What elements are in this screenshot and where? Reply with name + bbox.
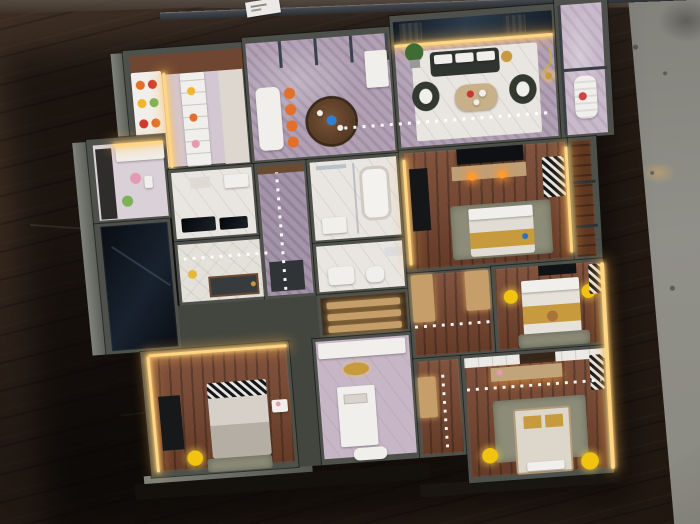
room-dining: [242, 27, 399, 164]
dark-cabinet: [95, 148, 118, 219]
white-dish: [479, 89, 487, 97]
green-flower: [122, 195, 134, 207]
gold-dish: [343, 362, 370, 377]
lit-wardrobe: [418, 376, 439, 418]
room-wardrobe-closet: [317, 289, 412, 339]
bath-fixture: [224, 173, 249, 188]
room-utility: [86, 134, 172, 224]
striped-closet: [542, 156, 566, 198]
sink: [322, 216, 347, 234]
room-bedroom-two: [491, 258, 607, 353]
food-item: [139, 119, 149, 129]
food-item: [149, 98, 159, 108]
food-item: [191, 140, 200, 149]
room-second-kitchen: [312, 332, 420, 465]
cabinet-row: [318, 337, 406, 359]
pink-flower: [130, 172, 142, 184]
sofa: [429, 47, 500, 77]
black-counter: [219, 216, 248, 230]
curtain: [399, 22, 423, 42]
sofa-cushion: [476, 51, 495, 62]
led-strip: [146, 356, 160, 472]
bathtub: [358, 165, 392, 221]
apartment-model: [30, 0, 636, 524]
lit-wardrobe: [410, 274, 435, 323]
striped-pillows: [206, 379, 266, 399]
tag-mark: [251, 3, 267, 7]
mirror: [316, 164, 346, 170]
food-item: [151, 118, 161, 128]
led-dot-run: [441, 370, 449, 448]
bed: [513, 405, 574, 475]
bath-shelf: [384, 246, 403, 256]
warm-downlight: [468, 172, 477, 181]
room-balcony: [554, 0, 614, 139]
kitchen-island: [337, 385, 379, 448]
bar-stool: [283, 87, 295, 99]
closet-shelf: [328, 321, 402, 333]
side-balcony: [568, 136, 603, 260]
gold-pillow: [523, 415, 541, 429]
island-sink: [343, 393, 367, 404]
yellow-stool: [187, 450, 204, 467]
striped-shutters: [589, 354, 605, 390]
warm-downlight: [498, 170, 507, 179]
red-dish: [467, 90, 475, 98]
sofa-cushion: [455, 52, 474, 63]
lit-wardrobe: [464, 270, 490, 311]
sofa-cushion: [434, 54, 453, 65]
bar-stool: [287, 136, 299, 148]
white-vase: [144, 176, 153, 189]
sideboard-cabinet: [364, 50, 389, 88]
bed: [206, 379, 271, 459]
lamp-base: [545, 72, 553, 80]
bed-bench: [527, 460, 565, 471]
black-wardrobe: [409, 168, 431, 231]
hallway-lower: [413, 356, 467, 458]
photo-scene: [0, 0, 700, 524]
bed: [468, 204, 535, 257]
glass-mullion: [561, 66, 608, 73]
bath-fixture: [190, 176, 211, 189]
room-bathroom-three: [313, 237, 409, 295]
glass-mullion: [576, 224, 598, 229]
tv-panel: [538, 263, 576, 276]
bed: [521, 277, 582, 336]
room-bedroom-one: [399, 138, 575, 273]
food-item: [189, 113, 198, 122]
soft-seat: [353, 446, 387, 461]
pillows: [521, 277, 579, 293]
toilet: [366, 266, 385, 283]
bar-counter: [255, 87, 284, 152]
gold-ornament: [188, 270, 198, 280]
curtain: [503, 14, 526, 34]
armchair-cushion: [419, 88, 433, 104]
room-small-bedroom: [140, 341, 299, 478]
armchair-cushion: [516, 81, 530, 97]
yellow-stool: [581, 452, 600, 471]
bedside-lamp: [503, 289, 518, 304]
dining-table: [307, 97, 357, 145]
black-counter: [181, 216, 216, 233]
coffee-table: [454, 82, 498, 112]
blue-dish: [326, 115, 337, 126]
food-item: [135, 80, 145, 90]
white-dish: [473, 99, 479, 106]
dark-wood-beam: [519, 352, 555, 364]
stair-void: [94, 219, 182, 355]
glass-mullion: [573, 180, 595, 185]
food-item: [137, 99, 147, 109]
gold-pillow: [545, 414, 563, 428]
bar-stool: [285, 104, 297, 116]
food-item: [147, 79, 157, 89]
closet-shelf: [327, 309, 401, 321]
door-frame: [257, 163, 304, 175]
tv-cabinet: [158, 395, 185, 451]
food-item: [187, 87, 196, 96]
closet-shelf: [326, 297, 400, 309]
room-bathroom-main: [168, 164, 260, 243]
blanket: [210, 422, 272, 459]
plant-pot: [410, 59, 421, 68]
table-dish: [337, 125, 344, 132]
room-bathroom-two: [306, 153, 404, 244]
basin: [328, 266, 355, 286]
tag-mark: [251, 8, 261, 12]
tv-console: [451, 162, 526, 182]
bar-stool: [286, 120, 298, 132]
room-living: [389, 4, 562, 151]
room-master-bedroom: [461, 345, 615, 483]
kitchen-shelf-unit: [179, 72, 211, 167]
hallway-upper: [407, 267, 496, 360]
table-dish: [317, 110, 324, 117]
void-sheen: [111, 246, 171, 286]
